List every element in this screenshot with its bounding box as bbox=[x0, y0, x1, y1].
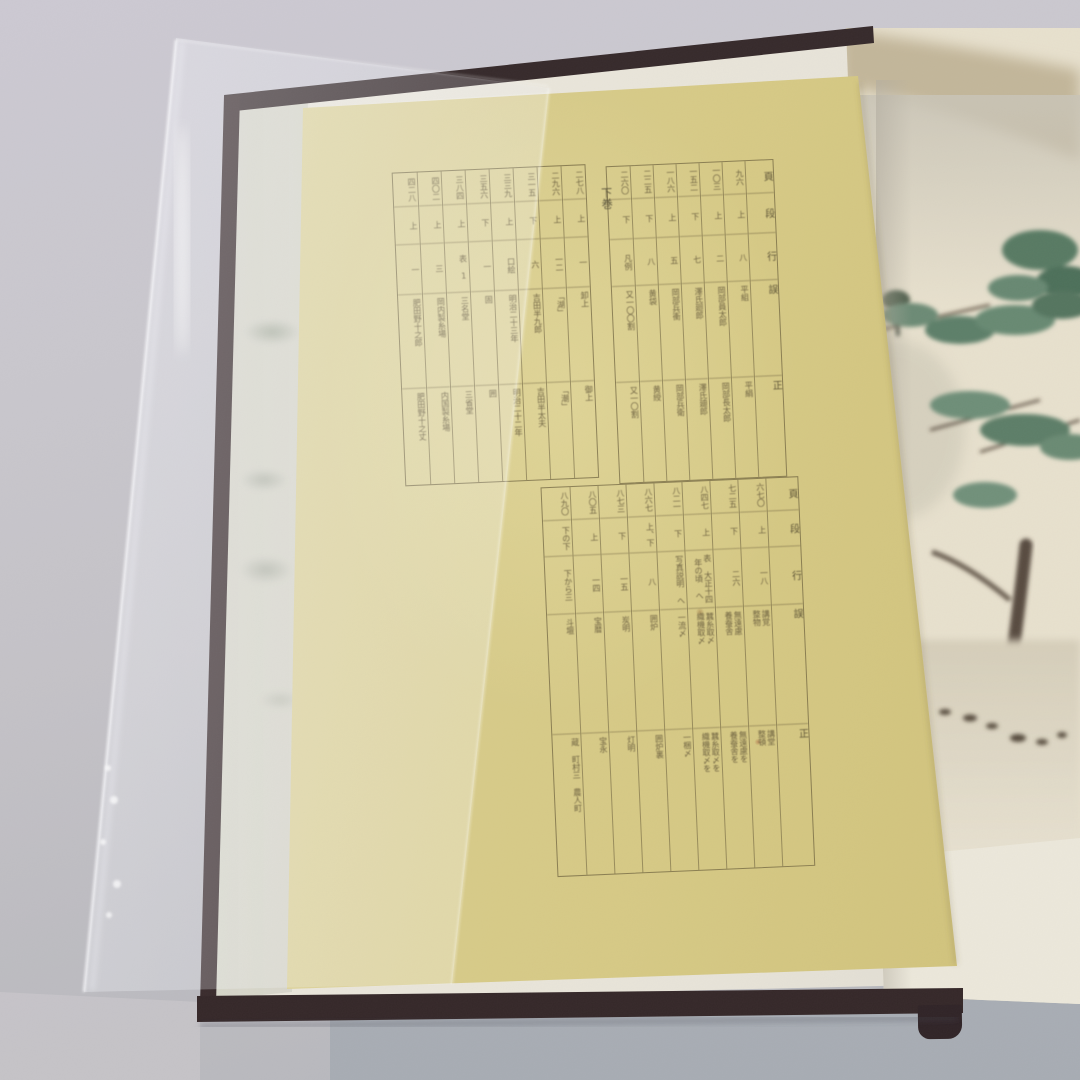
errata-line: 八 bbox=[629, 552, 659, 611]
errata-dan: 下 bbox=[608, 199, 633, 240]
errata-line: 五 bbox=[657, 237, 681, 285]
errata-line: 写真説明 へ bbox=[657, 551, 687, 610]
header-dan: 段 bbox=[747, 193, 776, 234]
errata-page-number: 二九六 bbox=[538, 166, 562, 201]
errata-wrong-text: 岡部兵衝 bbox=[659, 284, 685, 381]
errata-page-number: 八六七 bbox=[626, 484, 654, 518]
errata-line: 一四 bbox=[574, 555, 604, 614]
errata-dan: 下 bbox=[632, 198, 656, 239]
errata-page-number: 七二五 bbox=[710, 480, 738, 514]
errata-wrong-text: 蠶糸取〆 織機取〆 bbox=[688, 608, 720, 729]
header-wrong: 誤 bbox=[772, 604, 808, 725]
errata-page-number: 二七八 bbox=[562, 165, 586, 200]
errata-dan: 下 bbox=[678, 196, 702, 237]
errata-page-number: 八二一 bbox=[654, 482, 682, 516]
errata-line: 八 bbox=[634, 238, 658, 286]
errata-line: 一 bbox=[565, 237, 590, 288]
errata-line: 一二 bbox=[541, 238, 566, 289]
errata-page-number: 二二五 bbox=[631, 165, 654, 199]
errata-dan: 上 bbox=[539, 200, 564, 239]
errata-page-number: 八四七 bbox=[682, 481, 710, 515]
errata-page-number: 六七〇 bbox=[738, 479, 766, 513]
errata-dan: 上 bbox=[684, 514, 713, 551]
errata-correct-text: 御上 bbox=[571, 381, 598, 478]
errata-page-number: 一八六 bbox=[654, 164, 677, 198]
errata-line: 下から三 bbox=[545, 556, 576, 615]
errata-page-number: 一〇三 bbox=[700, 162, 723, 196]
errata-correct-text: 岡部兵衛 bbox=[663, 380, 689, 481]
errata-dan: 下 bbox=[712, 513, 741, 550]
errata-wrong-text: 一流〆 bbox=[660, 609, 692, 730]
errata-correct-text: 又一〇割 bbox=[616, 382, 643, 483]
errata-dan: 上 bbox=[572, 519, 601, 556]
errata-line: 表 大正十四年の頃 へ bbox=[685, 550, 715, 609]
errata-line: 八 bbox=[726, 234, 750, 282]
header-dan: 段 bbox=[768, 510, 801, 547]
errata-line: 七 bbox=[680, 236, 704, 284]
errata-wrong-text: 講覚 整物 bbox=[744, 606, 776, 727]
errata-line: 一八 bbox=[741, 548, 771, 607]
errata-correct-text: 岡部長太郎 bbox=[709, 378, 735, 479]
errata-dan: 上、下 bbox=[628, 516, 657, 553]
errata-wrong-text: 斗壇 bbox=[547, 614, 580, 735]
errata-dan: 上 bbox=[724, 194, 748, 235]
errata-wrong-text: 又一〇〇割 bbox=[612, 286, 639, 383]
errata-dan: 上 bbox=[740, 512, 769, 549]
errata-correct-text: 黄綬 bbox=[640, 381, 666, 482]
errata-dan: 下の下 bbox=[543, 520, 573, 557]
errata-line: 二 bbox=[703, 235, 727, 283]
errata-wrong-text: 無遠慮 養蚕舎 bbox=[716, 607, 748, 728]
errata-page-number: 九六 bbox=[722, 161, 745, 195]
header-line: 行 bbox=[749, 233, 778, 281]
errata-line: 凡例 bbox=[610, 239, 635, 287]
errata-wrong-text: 炭明 bbox=[604, 612, 636, 733]
errata-correct-text: 澤氏廸郎 bbox=[686, 379, 712, 480]
errata-page-number: 八九〇 bbox=[542, 487, 571, 521]
errata-wrong-text: 「湖」 bbox=[543, 288, 570, 383]
errata-wrong-text: 囲炉 bbox=[632, 610, 664, 731]
errata-correct-text: 平絹 bbox=[732, 377, 758, 478]
errata-line: 二六 bbox=[713, 549, 743, 608]
header-correct: 正 bbox=[777, 724, 814, 866]
errata-line: 一五 bbox=[602, 554, 632, 613]
errata-page-number: 一五二 bbox=[677, 163, 700, 197]
photo-of-open-book-with-errata-sheet: 二七八 上 一 卸上 御上 二九六 上 一二 「湖」 「潮」 三一五 下 六 吉… bbox=[0, 0, 1080, 1080]
header-page: 頁 bbox=[745, 160, 773, 194]
errata-table-upper-right: 頁 段 行 誤 正 九六 上 八 平組 平絹 一〇三 上 二 岡部員太郎 岡部長… bbox=[606, 159, 788, 484]
header-page: 頁 bbox=[766, 477, 798, 511]
errata-correct-text: 「潮」 bbox=[547, 382, 574, 479]
errata-table-lower: 頁 段 行 誤 正 六七〇 上 一八 講覚 整物 講堂 整頓 七二五 下 二六 … bbox=[541, 476, 816, 877]
errata-dan: 上 bbox=[655, 197, 679, 238]
errata-dan: 下 bbox=[656, 515, 685, 552]
errata-wrong-text: 平組 bbox=[728, 281, 754, 378]
errata-page-number: 八七三 bbox=[598, 485, 626, 519]
errata-correct-text: 吉田半太夫 bbox=[523, 383, 550, 480]
errata-page-number: 八〇五 bbox=[571, 486, 599, 520]
errata-dan: 上 bbox=[563, 199, 588, 238]
errata-dan: 下 bbox=[600, 518, 629, 555]
errata-wrong-text: 澤氏廻郎 bbox=[682, 283, 708, 380]
errata-wrong-text: 黄袋 bbox=[636, 285, 662, 382]
errata-dan: 上 bbox=[701, 195, 725, 236]
header-line: 行 bbox=[769, 546, 803, 605]
header-wrong: 誤 bbox=[751, 280, 782, 377]
errata-wrong-text: 岡部員太郎 bbox=[705, 282, 731, 379]
errata-page-number: 二六〇 bbox=[607, 166, 631, 200]
header-correct: 正 bbox=[755, 376, 786, 477]
errata-wrong-text: 宝暦 bbox=[576, 613, 608, 734]
errata-wrong-text: 卸上 bbox=[567, 287, 594, 382]
